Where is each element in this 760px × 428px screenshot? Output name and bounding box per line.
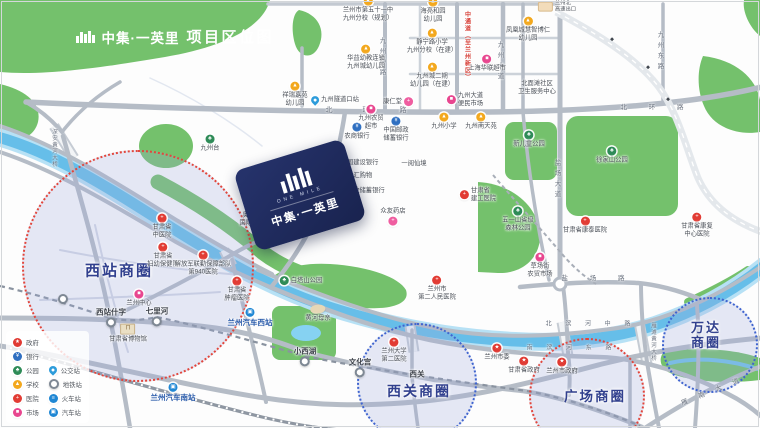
- poi-jiuzhou-phase2-kindergarten[interactable]: ▲九州城二期幼儿园（在建）: [408, 63, 456, 90]
- school-icon: ▲: [362, 45, 371, 54]
- poi-label: 五一山省级森林公园: [502, 217, 533, 233]
- hospital-icon: +: [158, 243, 167, 252]
- bus-pin-icon: [47, 364, 58, 375]
- government-icon: ★: [493, 344, 502, 353]
- legend-item-government: ★政府: [13, 335, 39, 349]
- poi-label: 康仁堂: [383, 98, 402, 106]
- government-icon: ★: [519, 357, 528, 366]
- page-title: 中集·一英里 项目区位图: [76, 26, 274, 47]
- hospital-icon: +: [157, 214, 166, 223]
- legend-item-park: ♣公园: [13, 363, 39, 377]
- poi-xiangrui-kindergarten[interactable]: ▲祥瑞嘉苑幼儿园: [280, 82, 309, 109]
- bank-icon: ¥: [392, 117, 401, 126]
- poi-label: 甘肃省政府: [508, 367, 539, 375]
- poi-fenghuangcheng-kindergarten[interactable]: ▲凤凰城慧智博仁幼儿园: [504, 17, 552, 44]
- poi-lanzhou-north-toll[interactable]: 兰州北高速出口: [538, 0, 578, 14]
- brand-name: 中集·一英里: [102, 27, 180, 47]
- poi-car-2[interactable]: ◆: [646, 66, 650, 71]
- poi-huanghe-muqin[interactable]: 黄河母亲: [303, 305, 332, 324]
- legend-item-metro_station: 地铁站: [49, 377, 82, 391]
- park-icon: ♣: [205, 135, 214, 144]
- poi-label: 北面滩社区卫生服务中心: [518, 80, 556, 96]
- poi-caochangjie-market[interactable]: ■草场街农贸市场: [525, 253, 554, 280]
- location-map: 西站商圈西关商圈广场商圈万达商圈 北 环 路北 环 路盐 场 路北 滨 河 中 …: [0, 0, 760, 428]
- poi-baitashan-park[interactable]: ♣白塔山公园: [280, 276, 324, 286]
- poi-qilihe-station[interactable]: 七里河: [144, 305, 171, 326]
- poi-label: 西关: [410, 369, 425, 378]
- poi-label: 兰州汽车西站: [228, 318, 273, 327]
- poi-label: 九州小学: [431, 123, 456, 131]
- poi-label: 甘肃省博物馆: [109, 336, 147, 344]
- road-label-jiuzhou-east-road: 九州东路: [654, 31, 664, 73]
- poi-xizhanshizi-station[interactable]: 西站什字: [94, 306, 128, 327]
- poi-label: 兰州市政府: [546, 368, 577, 376]
- government-icon: ★: [557, 358, 566, 367]
- road-label-yanchang-avenue: 盐场大道: [551, 159, 561, 201]
- poi-label: 甘肃省康复中心医院: [681, 223, 712, 239]
- legend: ★政府¥银行♣公园▲学校+医院■市场 公交站地铁站≡火车站▣汽车站: [6, 331, 89, 423]
- hospital-icon: +: [460, 191, 469, 200]
- poi-wenhuagong-station[interactable]: 文化宫: [347, 356, 374, 377]
- poi-label: 九州台: [201, 145, 220, 153]
- road-label-shenan-bridge: 深安黄河大桥: [50, 129, 58, 168]
- road-label-yantan-bridge: 雁滩黄河大桥: [649, 323, 657, 362]
- hospital-icon: +: [433, 276, 442, 285]
- car-icon: ◆: [610, 38, 614, 43]
- poi-hailiang-kindergarten[interactable]: ▲海亮和园幼儿园: [418, 0, 447, 24]
- poi-pla940-hospital[interactable]: +解放军联勤保障部队第940医院: [173, 251, 234, 278]
- poi-label: 凤凰城慧智博仁幼儿园: [506, 27, 550, 43]
- poi-label: 兰州市第二人民医院: [418, 286, 456, 302]
- legend-left-column: ★政府¥银行♣公园▲学校+医院■市场: [13, 335, 39, 419]
- poi-label: 黄河母亲: [305, 315, 330, 323]
- pharmacy-icon: +: [404, 97, 413, 106]
- poi-west-coach-station[interactable]: ▣兰州汽车西站: [226, 308, 275, 328]
- poi-label: 甘肃省中医院: [153, 224, 172, 240]
- poi-label: 九州城二期幼儿园（在建）: [410, 73, 454, 89]
- poi-label: 九州南天苑: [465, 123, 496, 131]
- legend-item-label: 火车站: [62, 394, 81, 403]
- car-icon: ◆: [646, 66, 650, 71]
- legend-item-label: 公交站: [61, 366, 80, 375]
- poi-label: 九州隧道口站: [321, 96, 359, 104]
- poi-label: 静宁路小学九州分校（在建）: [407, 39, 457, 55]
- poi-car-3[interactable]: ◆: [666, 98, 670, 103]
- circle-label-xizhan: 西站商圈: [85, 262, 153, 279]
- poi-lzu-no2-hospital[interactable]: +兰州大学第二医院: [379, 338, 408, 365]
- legend-item-bus_pin: 公交站: [49, 363, 82, 377]
- poi-label: 徐家山公园: [596, 157, 627, 165]
- market-icon: ■: [367, 105, 376, 114]
- poi-label: 甘肃省肿瘤医院: [224, 287, 249, 303]
- map-title-text: 项目区位图: [187, 26, 275, 47]
- circle-label-wanda: 万达商圈: [691, 321, 721, 351]
- poi-label: 海亮和园幼儿园: [420, 8, 445, 24]
- poi-label: 白塔山公园: [291, 277, 322, 285]
- poi-label: 甘肃省建工医院: [471, 187, 496, 203]
- poi-xiaoxihu-station[interactable]: 小西湖: [292, 345, 319, 366]
- poi-label: 草场街农贸市场: [527, 263, 552, 279]
- poi-label: 小西湖: [294, 346, 317, 355]
- poi-label: 兰州汽车南站: [151, 393, 196, 402]
- legend-right-column: 公交站地铁站≡火车站▣汽车站: [49, 363, 82, 419]
- school-icon: ▲: [523, 17, 532, 26]
- school-icon: ▲: [429, 0, 438, 7]
- hospital-icon: +: [580, 217, 589, 226]
- metro-station-icon: [58, 294, 68, 304]
- legend-item-label: 公园: [26, 366, 39, 375]
- hospital-icon: +: [692, 213, 701, 222]
- poi-zhongyou-pharmacy[interactable]: +众友药店: [378, 207, 407, 226]
- road-label-nanbinhe-east: 南 滨 河 东 路: [527, 343, 618, 352]
- legend-item-label: 汽车站: [62, 408, 81, 417]
- market-icon: ■: [536, 253, 545, 262]
- poi-jiuzhou-tunnel-stop[interactable]: 九州隧道口站: [311, 95, 361, 105]
- legend-item-coach: ▣汽车站: [49, 405, 82, 419]
- poi-kangfu-hospital[interactable]: +甘肃省康复中心医院: [679, 213, 714, 240]
- school-icon: ▲: [364, 0, 373, 6]
- legend-item-school: ▲学校: [13, 377, 39, 391]
- park-icon: ♣: [280, 276, 289, 285]
- poi-label: 上海华联超市: [468, 65, 506, 73]
- metro-station-icon: [300, 357, 310, 367]
- poi-label: 甘肃省康泰医院: [563, 227, 607, 235]
- poi-jingning-primary[interactable]: ▲静宁路小学九州分校（在建）: [405, 29, 459, 56]
- metro-station-icon: [106, 318, 116, 328]
- poi-province-gov[interactable]: ★甘肃省政府: [506, 357, 541, 376]
- poi-xujiashan-park[interactable]: ♣徐家山公园: [594, 147, 629, 166]
- poi-south-coach-station[interactable]: ▣兰州汽车南站: [149, 383, 198, 403]
- toll-icon: [538, 2, 553, 12]
- government-icon: ★: [13, 338, 22, 347]
- hospital-icon: +: [233, 277, 242, 286]
- coach-icon: ▣: [246, 308, 255, 317]
- poi-jiangong-hospital[interactable]: +甘肃省建工医院: [460, 186, 498, 204]
- bank-icon: ¥: [13, 352, 22, 361]
- park-icon: ♣: [13, 366, 22, 375]
- legend-item-market: ■市场: [13, 405, 39, 419]
- metro-station-icon: [152, 317, 162, 327]
- hospital-icon: +: [13, 394, 22, 403]
- poi-label: 祥瑞嘉苑幼儿园: [282, 92, 307, 108]
- legend-item-label: 医院: [26, 394, 39, 403]
- poi-huayi-kindergarten[interactable]: ▲华益幼教连锁九州城幼儿园: [345, 45, 387, 72]
- poi-label: 解放军联勤保障部队第940医院: [175, 261, 232, 277]
- circle-label-guangchang: 广场商圈: [564, 389, 626, 405]
- poi-label: 七里河: [146, 306, 169, 315]
- circle-label-xiguan: 西关商圈: [387, 383, 451, 399]
- poi-label: 九州大道便民市场: [458, 92, 483, 108]
- school-icon: ▲: [291, 82, 300, 91]
- poi-label: 农商银行: [344, 133, 369, 141]
- poi-lanzhou-no2-hospital[interactable]: +兰州市第二人民医院: [416, 276, 458, 303]
- poi-label: 一阅仙境: [401, 160, 426, 168]
- poi-no51-middle-school[interactable]: ▲兰州市第五十一中九州分校（规划）: [341, 0, 395, 23]
- hospital-icon: +: [390, 338, 399, 347]
- bank-icon: ¥: [353, 123, 362, 132]
- poi-label: 中国邮政储蓄银行: [383, 127, 408, 143]
- brand-logo-icon: [76, 31, 95, 43]
- market-icon: ■: [447, 96, 456, 105]
- school-icon: ▲: [476, 113, 485, 122]
- poi-label: 华益幼教连锁九州城幼儿园: [347, 55, 385, 71]
- market-icon: ■: [483, 55, 492, 64]
- car-icon: ◆: [666, 98, 670, 103]
- poi-label: 西站什字: [96, 307, 126, 316]
- poi-tcm-hospital[interactable]: +甘肃省中医院: [151, 214, 174, 241]
- poi-kangrentang-pharmacy[interactable]: +康仁堂: [381, 97, 413, 107]
- poi-metro-station-west[interactable]: [58, 294, 68, 304]
- poi-label: 兰州大学第二医院: [381, 348, 406, 364]
- poi-nantianyuan[interactable]: ▲九州南天苑: [463, 113, 498, 132]
- park-icon: ♣: [524, 131, 533, 140]
- train-icon: ≡: [49, 394, 58, 403]
- coach-icon: ▣: [49, 408, 58, 417]
- park-icon: ♣: [607, 147, 616, 156]
- park-icon: ♣: [513, 207, 522, 216]
- legend-item-label: 政府: [26, 338, 39, 347]
- poi-shanghai-hualian-market[interactable]: ■上海华联超市: [466, 55, 508, 74]
- poi-jiuzhou-primary[interactable]: ▲九州小学: [429, 113, 458, 132]
- poi-label: 兰州市第五十一中九州分校（规划）: [343, 7, 393, 23]
- poi-bianmin-market[interactable]: ■九州大道便民市场: [447, 91, 485, 109]
- legend-item-train: ≡火车站: [49, 391, 82, 405]
- landmark-icon: [311, 305, 326, 314]
- legend-item-bank: ¥银行: [13, 349, 39, 363]
- legend-item-hospital: +医院: [13, 391, 39, 405]
- coach-icon: ▣: [169, 383, 178, 392]
- poi-label: 新儿童公园: [513, 141, 544, 149]
- school-icon: ▲: [427, 63, 436, 72]
- market-icon: ■: [135, 290, 144, 299]
- school-icon: ▲: [428, 29, 437, 38]
- road-label-beihuan-east: 北 环 路: [620, 101, 693, 111]
- legend-item-label: 学校: [26, 380, 39, 389]
- poi-label: 兰州北高速出口: [555, 1, 576, 14]
- poi-psbc-bank-1[interactable]: ¥中国邮政储蓄银行: [381, 117, 410, 144]
- poi-new-children-park[interactable]: ♣新儿童公园: [511, 131, 546, 150]
- pharmacy-icon: +: [389, 216, 398, 225]
- poi-xiguan-label[interactable]: 西关: [408, 368, 427, 379]
- bus-pin-icon: [309, 94, 320, 105]
- hospital-icon: +: [198, 251, 207, 260]
- road-label-yanchang-road: 盐 场 路: [561, 272, 634, 282]
- poi-nongshang-bank[interactable]: ¥农商银行: [342, 123, 371, 142]
- poi-yiyue[interactable]: 一阅仙境: [399, 159, 428, 169]
- poi-kangtai-hospital[interactable]: +甘肃省康泰医院: [561, 217, 609, 236]
- poi-label: 文化宫: [349, 357, 372, 366]
- road-label-beibinhe-middle: 北 滨 河 中 路: [546, 319, 637, 328]
- poi-wuyishan-park[interactable]: ♣五一山省级森林公园: [500, 207, 535, 234]
- legend-item-label: 地铁站: [63, 380, 82, 389]
- market-icon: ■: [13, 408, 22, 417]
- legend-item-label: 银行: [26, 352, 39, 361]
- metro-station-icon: [355, 368, 365, 378]
- metro-station-icon: [49, 379, 59, 389]
- poi-jiuzhoutai[interactable]: ♣九州台: [199, 135, 222, 154]
- poi-city-gov[interactable]: ★兰州市政府: [544, 358, 579, 377]
- poi-label: 众友药店: [380, 208, 405, 216]
- poi-beimiantan-clinic[interactable]: 北面滩社区卫生服务中心: [516, 79, 558, 97]
- poi-car-1[interactable]: ◆: [610, 38, 614, 43]
- legend-item-label: 市场: [26, 408, 39, 417]
- school-icon: ▲: [440, 113, 449, 122]
- school-icon: ▲: [13, 380, 22, 389]
- poi-zhongliu-hospital[interactable]: +甘肃省肿瘤医院: [222, 277, 251, 304]
